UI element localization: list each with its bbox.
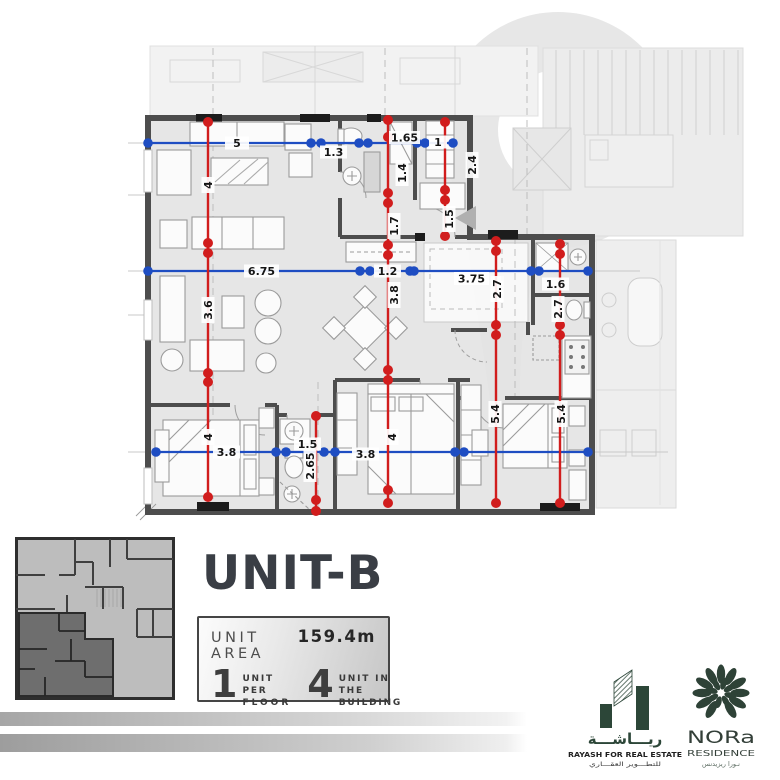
units-per-floor-stat: 1 UNIT PER FLOOR: [211, 665, 291, 709]
furniture-hall: [346, 242, 416, 262]
dim-label-3-6: 3.6: [202, 297, 216, 323]
nora-tree-icon: [693, 665, 750, 720]
nora-wordmark: NORa: [687, 728, 755, 748]
unit-area-value: 159.4m: [298, 627, 376, 646]
units-per-floor-label-1: UNIT PER: [242, 674, 274, 696]
dim-label-6-75: 6.75: [244, 265, 279, 279]
dim-label-4-b: 4: [202, 429, 216, 445]
unit-title: UNIT-B: [202, 546, 383, 601]
dim-label-1-65: 1.65: [389, 131, 420, 145]
key-plan: [15, 537, 175, 700]
svg-text:2.4: 2.4: [466, 155, 479, 175]
units-in-building-label-2: BUILDING: [339, 698, 402, 708]
dim-label-2-7-b: 2.7: [552, 296, 566, 322]
dim-label-3-75: 3.75: [454, 272, 489, 286]
rayash-logo: ريـــاشـــة RAYASH FOR REAL ESTATE للتطـ…: [563, 660, 687, 770]
rayash-building-icon: [600, 670, 649, 730]
dim-label-4-a: 4: [202, 177, 216, 193]
dim-label-1-7: 1.7: [388, 213, 402, 239]
units-per-floor-label-2: FLOOR: [242, 698, 291, 708]
svg-text:1.2: 1.2: [378, 265, 398, 278]
svg-text:1.65: 1.65: [391, 132, 418, 145]
dim-label-2-4: 2.4: [466, 152, 480, 178]
svg-text:5.4: 5.4: [555, 404, 568, 424]
dim-label-1-3: 1.3: [320, 146, 347, 160]
dim-label-1-2: 1.2: [374, 265, 401, 279]
dim-label-1-5-b: 1.5: [294, 438, 321, 452]
units-in-building-stat: 4 UNIT IN THE BUILDING: [307, 665, 402, 709]
svg-text:5.4: 5.4: [489, 404, 502, 424]
svg-text:4: 4: [202, 181, 215, 189]
units-in-building-count: 4: [307, 665, 333, 709]
dim-label-2-7-a: 2.7: [491, 276, 505, 302]
svg-text:1: 1: [434, 136, 442, 149]
unit-area-box: UNIT AREA 159.4m 1 UNIT PER FLOOR 4 UNIT…: [197, 616, 390, 702]
dim-label-2-65: 2.65: [304, 450, 318, 482]
svg-text:6.75: 6.75: [248, 265, 275, 278]
floor-plan: 3.8: [0, 0, 780, 535]
dim-label-5: 5: [225, 137, 249, 151]
svg-text:3.8: 3.8: [356, 448, 376, 461]
dim-label-1: 1: [429, 136, 447, 150]
rayash-arabic-tagline: للتطـــوير العقـــاري: [589, 761, 661, 768]
dim-label-5-4-a: 5.4: [489, 401, 503, 427]
flyer-canvas: 3.8: [0, 0, 780, 780]
svg-text:5: 5: [233, 137, 241, 150]
dim-label-1-5-v: 1.5: [443, 206, 457, 232]
svg-text:2.65: 2.65: [304, 452, 317, 479]
dim-label-3-8-v: 3.8: [388, 282, 402, 308]
nora-arabic: نـورا ريزيدنس: [702, 760, 740, 768]
svg-text:2.7: 2.7: [552, 299, 565, 319]
units-per-floor-count: 1: [211, 665, 237, 709]
svg-text:3.8: 3.8: [217, 446, 237, 459]
dim-label-1-4: 1.4: [396, 160, 410, 186]
svg-text:1.7: 1.7: [388, 216, 401, 236]
svg-text:2.7: 2.7: [491, 279, 504, 299]
svg-text:4: 4: [386, 433, 399, 441]
dim-label-3-8-b: 3.8: [352, 448, 379, 462]
svg-text:1.3: 1.3: [324, 146, 344, 159]
dim-label-5-4-b: 5.4: [555, 401, 569, 427]
decor-stripe-bottom: [0, 734, 527, 752]
svg-text:1.6: 1.6: [546, 278, 566, 291]
svg-text:3.6: 3.6: [202, 300, 215, 320]
nora-subtitle: RESIDENCE: [687, 749, 755, 758]
nora-residence-logo: NORa RESIDENCE نـورا ريزيدنس: [682, 655, 760, 769]
dim-label-4-c: 4: [386, 429, 400, 445]
decor-stripe-top: [0, 712, 527, 726]
svg-text:4: 4: [202, 433, 215, 441]
svg-text:1.5: 1.5: [443, 209, 456, 229]
dim-label-3-8-a: 3.8: [213, 446, 240, 460]
unit-area-label: UNIT AREA: [211, 630, 298, 662]
rayash-arabic-name: ريـــاشـــة: [588, 730, 663, 748]
svg-text:3.8: 3.8: [388, 285, 401, 305]
rayash-tagline: RAYASH FOR REAL ESTATE: [568, 751, 682, 759]
units-in-building-label-1: UNIT IN THE: [339, 674, 390, 696]
dim-label-1-6: 1.6: [542, 278, 569, 292]
svg-text:3.75: 3.75: [458, 273, 485, 286]
svg-text:1.4: 1.4: [396, 163, 409, 183]
svg-text:1.5: 1.5: [298, 438, 318, 451]
